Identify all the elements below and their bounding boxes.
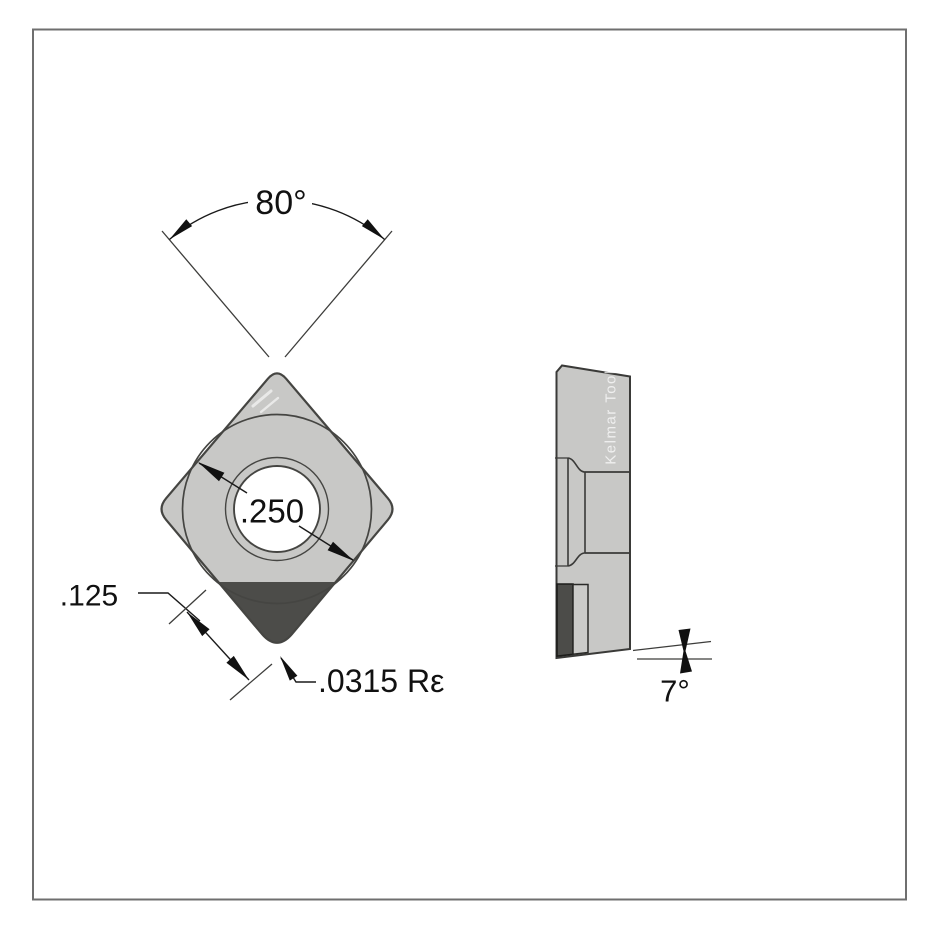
tip-extension-line-upper xyxy=(169,590,206,624)
angle-arrowhead-left xyxy=(169,219,192,239)
tip-length-label: .125 xyxy=(60,580,118,613)
clearance-angle-label: 7° xyxy=(660,674,690,709)
side-view: Kelmar Tool 7° xyxy=(555,366,712,709)
drawing-canvas: 80° .250 xyxy=(0,0,935,935)
angle-extension-line-right xyxy=(285,231,392,357)
clearance-slanted-line xyxy=(633,642,711,651)
angle-label: 80° xyxy=(255,184,306,222)
angle-extension-line-left xyxy=(162,231,269,357)
clearance-angle-arrows xyxy=(679,629,693,674)
radius-arrowhead xyxy=(280,656,297,681)
corner-radius-label: .0315 Rε xyxy=(318,663,444,699)
side-cutting-tip xyxy=(557,584,573,656)
side-tip-shim xyxy=(573,585,588,655)
front-view: 80° .250 xyxy=(60,184,445,700)
technical-drawing: 80° .250 xyxy=(0,0,935,935)
angle-arrowhead-right xyxy=(362,219,385,239)
sheet-border xyxy=(33,30,906,900)
brand-label: Kelmar Tool xyxy=(603,369,620,464)
angle-dimension-80deg: 80° xyxy=(162,184,392,357)
clearance-angle-dimension-7deg: 7° xyxy=(633,629,712,709)
ic-dimension-label: .250 xyxy=(240,493,304,530)
corner-radius-callout: .0315 Rε xyxy=(280,656,444,699)
